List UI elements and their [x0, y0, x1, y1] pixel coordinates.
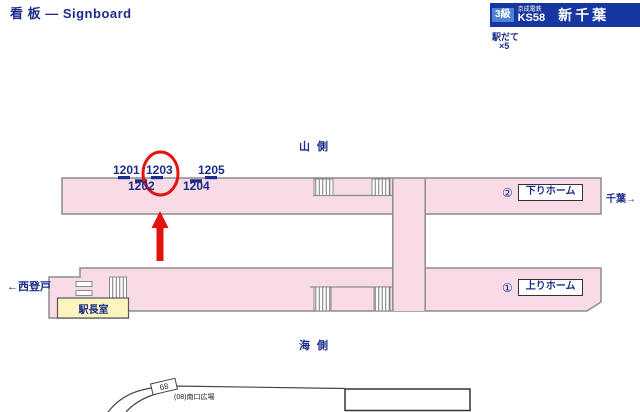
road-line-secondary	[126, 392, 163, 412]
direction-chiba: 千葉→	[606, 190, 636, 205]
platform-2-number: ②	[502, 186, 513, 200]
stairs-upper-left	[314, 179, 333, 196]
banner-note-count: ×5	[499, 41, 509, 51]
station-code-block: 京成電鉄 KS58	[518, 7, 546, 24]
page-title: 看 板 — Signboard	[10, 3, 132, 22]
signboard-location-diagram: 68 看 板 — Signboard 3級 京成電鉄 KS58 新千葉 駅だて …	[0, 0, 640, 412]
stairs-lower-right	[374, 287, 390, 311]
south-plaza-label: (08)南口広場	[174, 392, 214, 402]
station-banner: 3級 京成電鉄 KS58 新千葉	[490, 3, 640, 27]
up-platform-label: ① 上りホーム	[502, 279, 583, 296]
station-name: 新千葉	[558, 5, 609, 25]
pointer-arrow	[152, 211, 169, 261]
signboard-number-1201: 1201	[113, 163, 140, 177]
platform-1-name: 上りホーム	[518, 279, 584, 296]
sea-side-label: 海 側	[299, 337, 330, 353]
stairs-west-exit	[110, 277, 127, 298]
signboard-number-1204: 1204	[183, 179, 210, 193]
legend-box	[345, 389, 470, 411]
signboard-number-1202: 1202	[128, 179, 155, 193]
overbridge-corridor	[393, 179, 425, 311]
grade-badge: 3級	[492, 8, 514, 22]
mountain-side-label: 山 側	[299, 138, 330, 154]
direction-nishinobuto: ←西登戸	[7, 278, 51, 294]
stairs-upper-right	[372, 179, 390, 196]
signboard-number-1203: 1203	[146, 163, 173, 177]
down-platform-label: ② 下りホーム	[502, 184, 583, 201]
signboard-number-1205: 1205	[198, 163, 225, 177]
station-code: KS58	[518, 13, 546, 24]
stairs-lower-left	[314, 287, 331, 311]
fixture-bottom	[76, 291, 92, 296]
station-office-label: 駅長室	[58, 298, 129, 318]
platform-2-name: 下りホーム	[518, 184, 584, 201]
platform-1-number: ①	[502, 281, 513, 295]
fixture-top	[76, 282, 92, 287]
